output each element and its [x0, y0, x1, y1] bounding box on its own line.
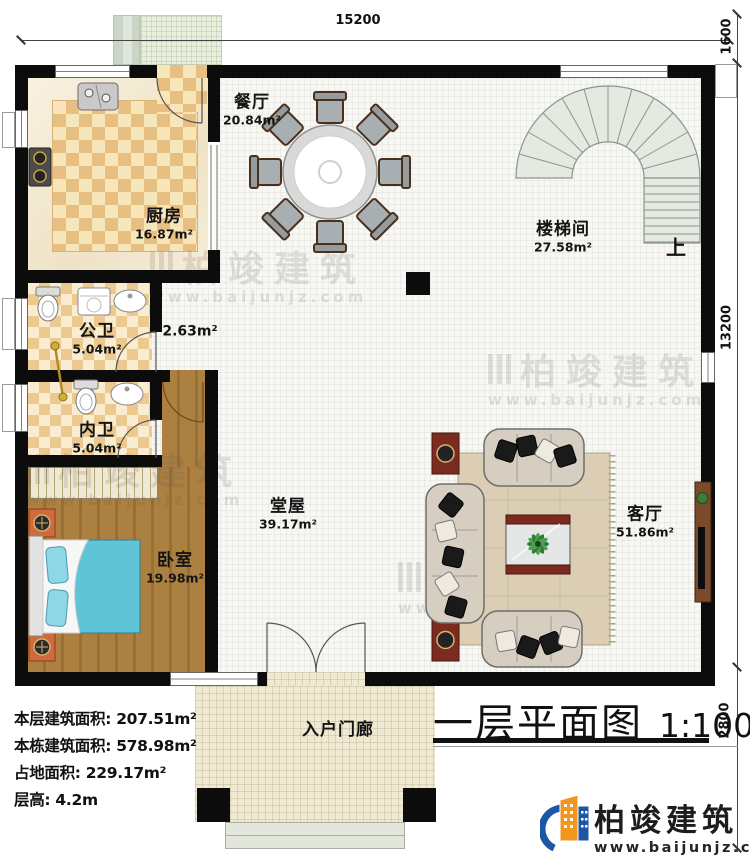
room-label-kitchen: 厨房16.87m² — [135, 207, 193, 240]
info-line: 占地面积: 229.17m² — [14, 760, 197, 787]
floor-plan-canvas: 柏竣建筑 www.baijunjz.com 柏竣建筑 www.baijunjz.… — [0, 0, 750, 864]
room-label-corridor: 2.63m² — [162, 324, 217, 339]
column-center — [406, 272, 430, 295]
dim-right-top: 1600 — [720, 17, 735, 57]
wall-bottom-c — [365, 672, 715, 686]
wall-bath1-right — [150, 283, 162, 332]
room-label-living: 客厅51.86m² — [616, 505, 674, 538]
area-info-block: 本层建筑面积: 207.51m² 本栋建筑面积: 578.98m² 占地面积: … — [14, 706, 197, 814]
window-sill-left-1 — [2, 112, 15, 148]
wall-kitchen-bottom — [28, 270, 220, 283]
window-kitchen-left — [15, 110, 28, 148]
room-label-stairwell: 楼梯间27.58m² — [534, 220, 592, 253]
wall-top-b — [207, 65, 560, 78]
porch-step-1 — [225, 822, 405, 836]
watermark-logo-icon — [488, 354, 512, 384]
info-line: 层高: 4.2m — [14, 787, 197, 814]
porch-step-2 — [225, 835, 405, 849]
window-sill-left-2 — [2, 298, 15, 350]
room-label-dining: 餐厅20.84m² — [223, 93, 281, 126]
stairs-up-label: 上 — [666, 232, 686, 261]
brand-website: www.baijunjz.com — [594, 840, 750, 856]
dim-top: 15200 — [318, 13, 398, 28]
kitchen-door-landing — [157, 65, 207, 112]
window-bath2-left — [15, 384, 28, 432]
window-bedroom-bottom — [170, 672, 258, 686]
window-bath1-left — [15, 298, 28, 350]
info-line: 本层建筑面积: 207.51m² — [14, 706, 197, 733]
room-label-bedroom: 卧室19.98m² — [146, 551, 204, 584]
wall-bath-divider — [28, 370, 162, 382]
room-label-hall: 堂屋39.17m² — [259, 497, 317, 530]
window-sill-right-top — [715, 64, 737, 98]
wall-kitchen-right-top — [208, 78, 220, 142]
watermark: 柏竣建筑 www.baijunjz.com — [488, 343, 705, 409]
wall-bedroom-top — [28, 455, 162, 467]
wall-left — [15, 65, 28, 686]
kitchen-sliding-door-gap — [208, 142, 220, 250]
window-sill-left-3 — [2, 384, 15, 432]
porch-column-right — [403, 788, 436, 822]
room-label-inner-bath: 内卫5.04m² — [72, 421, 121, 454]
window-stairwell-top — [560, 65, 668, 78]
wall-bottom-a — [15, 672, 170, 686]
info-line: 本栋建筑面积: 578.98m² — [14, 733, 197, 760]
wall-vestibule-stub — [162, 370, 170, 382]
title-underline — [433, 738, 709, 743]
window-kitchen-top — [55, 65, 130, 78]
window-living-right — [701, 352, 715, 383]
watermark-logo-icon — [398, 562, 422, 592]
title-underline-thin — [433, 746, 738, 747]
porch-floor — [195, 686, 435, 822]
wall-bedroom-right — [205, 370, 218, 672]
room-label-public-bath: 公卫5.04m² — [72, 322, 121, 355]
dim-right-side: 13200 — [720, 298, 735, 358]
porch-column-left — [197, 788, 230, 822]
dim-line-top — [20, 40, 730, 41]
watermark: 柏竣建筑 www.baijunjz.com — [398, 551, 615, 617]
wall-bottom-b — [258, 672, 267, 686]
wall-bath2-right — [150, 382, 162, 420]
room-label-porch: 入户门廊 — [302, 721, 374, 741]
brand-name: 柏竣建筑 — [594, 803, 738, 839]
brand-logo-icon — [540, 792, 592, 854]
entry-threshold — [267, 672, 365, 686]
brand-text: 柏竣建筑 www.baijunjz.com — [594, 795, 750, 856]
brand-logo: 柏竣建筑 www.baijunjz.com — [540, 792, 592, 858]
